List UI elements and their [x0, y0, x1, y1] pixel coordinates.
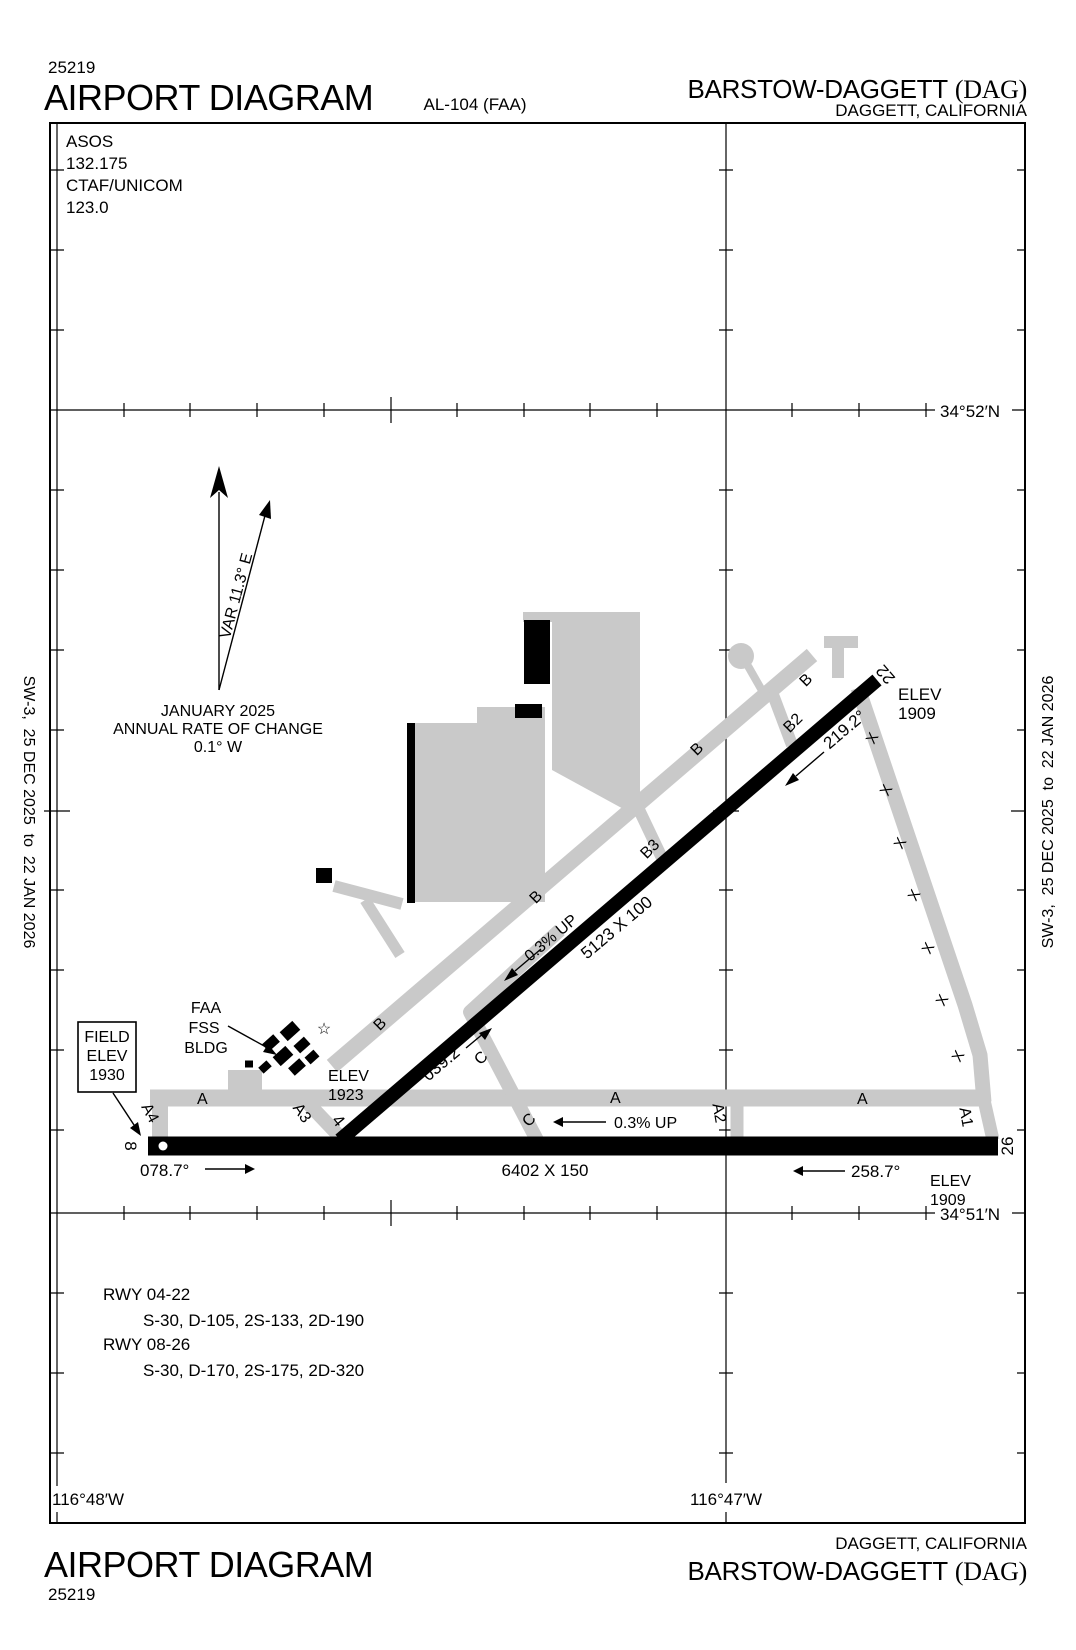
- asos-label: ASOS: [66, 132, 113, 151]
- runway-data-block: RWY 04-22 S-30, D-105, 2S-133, 2D-190 RW…: [103, 1285, 364, 1380]
- footer-airport-name-text: BARSTOW-DAGGETT: [688, 1556, 949, 1586]
- footer-chart-number: 25219: [48, 1585, 95, 1604]
- longitude-label-right: 116°47′W: [690, 1490, 762, 1509]
- field-elev-line3: 1930: [89, 1067, 125, 1084]
- building: [515, 704, 542, 718]
- rwy26-elev-value: 1909: [930, 1192, 966, 1209]
- footer-airport-code: (DAG): [955, 1557, 1027, 1586]
- rwy08-heading-annotation: 078.7°: [140, 1161, 255, 1180]
- latitude-label-top: 34°52′N: [940, 402, 1000, 421]
- taxiway-a1-label: A1: [955, 1106, 975, 1128]
- fss-building-cluster: [245, 1021, 319, 1076]
- annual-rate-value: 0.1° W: [194, 739, 243, 756]
- airport-diagram-page: 25219 AIRPORT DIAGRAM AL-104 (FAA) BARST…: [0, 0, 1076, 1650]
- rwy26-elev-label: ELEV: [930, 1173, 971, 1190]
- fss-line3: BLDG: [184, 1040, 228, 1057]
- building: [524, 620, 550, 684]
- rwy2-label: RWY 08-26: [103, 1335, 190, 1354]
- header-title: AIRPORT DIAGRAM: [44, 77, 373, 118]
- closed-x-marker: X: [919, 940, 939, 957]
- rwy1-label: RWY 04-22: [103, 1285, 190, 1304]
- rwy0826-slope: 0.3% UP: [614, 1115, 677, 1132]
- header-city-state: DAGGETT, CALIFORNIA: [835, 101, 1027, 120]
- header-airport-code: (DAG): [955, 75, 1027, 104]
- taxiway-a-label: A: [197, 1091, 208, 1108]
- rwy22-elev-label: ELEV: [898, 685, 942, 704]
- longitude-label-left: 116°48′W: [52, 1490, 124, 1509]
- variation-date: JANUARY 2025: [161, 703, 275, 720]
- annual-rate-label: ANNUAL RATE OF CHANGE: [113, 721, 323, 738]
- fss-callout: FAA FSS BLDG: [184, 1000, 277, 1057]
- header-plate-id: AL-104 (FAA): [424, 95, 527, 114]
- header-airport-name: BARSTOW-DAGGETT(DAG): [688, 74, 1028, 104]
- right-margin-revision: SW-3, 25 DEC 2025 to 22 JAN 2026: [1040, 676, 1057, 949]
- field-elev-line1: FIELD: [84, 1029, 129, 1046]
- rwy26-heading: 258.7°: [851, 1162, 900, 1181]
- footer-title: AIRPORT DIAGRAM: [44, 1544, 373, 1585]
- taxiway-a-label: A: [610, 1090, 621, 1107]
- rwy04-elev-label: ELEV: [328, 1068, 369, 1085]
- header-airport-name-text: BARSTOW-DAGGETT: [688, 74, 949, 104]
- taxiway-a-label: A: [857, 1091, 868, 1108]
- rwy0826-dimensions: 6402 X 150: [502, 1161, 589, 1180]
- beacon-star-icon: ☆: [317, 1021, 331, 1038]
- runway-08-threshold-dot: [159, 1142, 168, 1151]
- closed-taxiway-markers: X X X X X X X: [863, 730, 969, 1065]
- header-chart-number: 25219: [48, 58, 95, 77]
- fss-line1: FAA: [191, 1000, 222, 1017]
- north-arrow: [210, 466, 228, 690]
- ctaf-unicom-label: CTAF/UNICOM: [66, 176, 183, 195]
- rwy08-number: 8: [121, 1141, 140, 1150]
- ctaf-unicom-frequency: 123.0: [66, 198, 109, 217]
- apron-main: [410, 707, 545, 902]
- left-margin-revision: SW-3, 25 DEC 2025 to 22 JAN 2026: [20, 676, 37, 949]
- comm-frequencies-block: ASOS 132.175 CTAF/UNICOM 123.0: [66, 132, 183, 217]
- field-elev-line2: ELEV: [87, 1048, 128, 1065]
- fss-line2: FSS: [188, 1020, 219, 1037]
- building-hangar-row: [407, 723, 415, 903]
- diagram-canvas: 25219 AIRPORT DIAGRAM AL-104 (FAA) BARST…: [0, 0, 1076, 1650]
- taxiway-a2-label: A2: [708, 1102, 728, 1124]
- rwy22-elev-value: 1909: [898, 704, 936, 723]
- footer-city-state: DAGGETT, CALIFORNIA: [835, 1534, 1027, 1553]
- closed-x-marker: X: [933, 992, 953, 1009]
- rwy26-number: 26: [998, 1137, 1017, 1156]
- asos-frequency: 132.175: [66, 154, 127, 173]
- rwy26-heading-annotation: 258.7°: [793, 1162, 900, 1181]
- rwy04-elev-value: 1923: [328, 1087, 364, 1104]
- building: [316, 868, 332, 883]
- footer-airport-name: BARSTOW-DAGGETT(DAG): [688, 1556, 1028, 1586]
- variation-label: VAR 11.3° E: [217, 551, 256, 640]
- rwy2-data: S-30, D-170, 2S-175, 2D-320: [143, 1361, 364, 1380]
- rwy1-data: S-30, D-105, 2S-133, 2D-190: [143, 1311, 364, 1330]
- rwy0826-slope-annotation: 0.3% UP: [553, 1115, 677, 1132]
- field-elevation-box: FIELD ELEV 1930: [78, 1022, 141, 1136]
- closed-x-marker: X: [949, 1048, 969, 1065]
- rwy08-heading: 078.7°: [140, 1161, 189, 1180]
